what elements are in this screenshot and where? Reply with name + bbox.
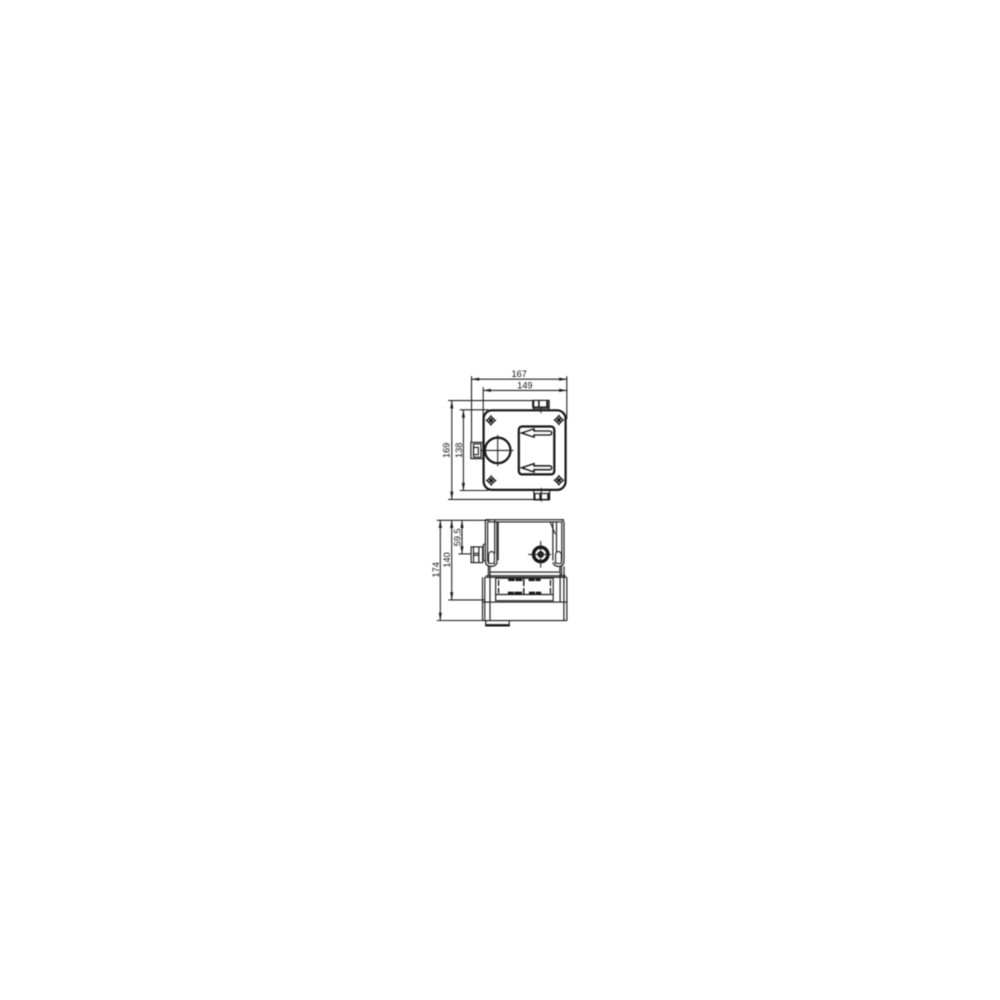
svg-text:167: 167 [512,369,527,379]
svg-text:149: 149 [517,380,532,390]
svg-text:138: 138 [454,443,464,458]
svg-text:174: 174 [431,562,441,577]
svg-text:140: 140 [442,552,452,567]
svg-text:169: 169 [441,443,451,458]
svg-text:59,5: 59,5 [452,528,462,546]
